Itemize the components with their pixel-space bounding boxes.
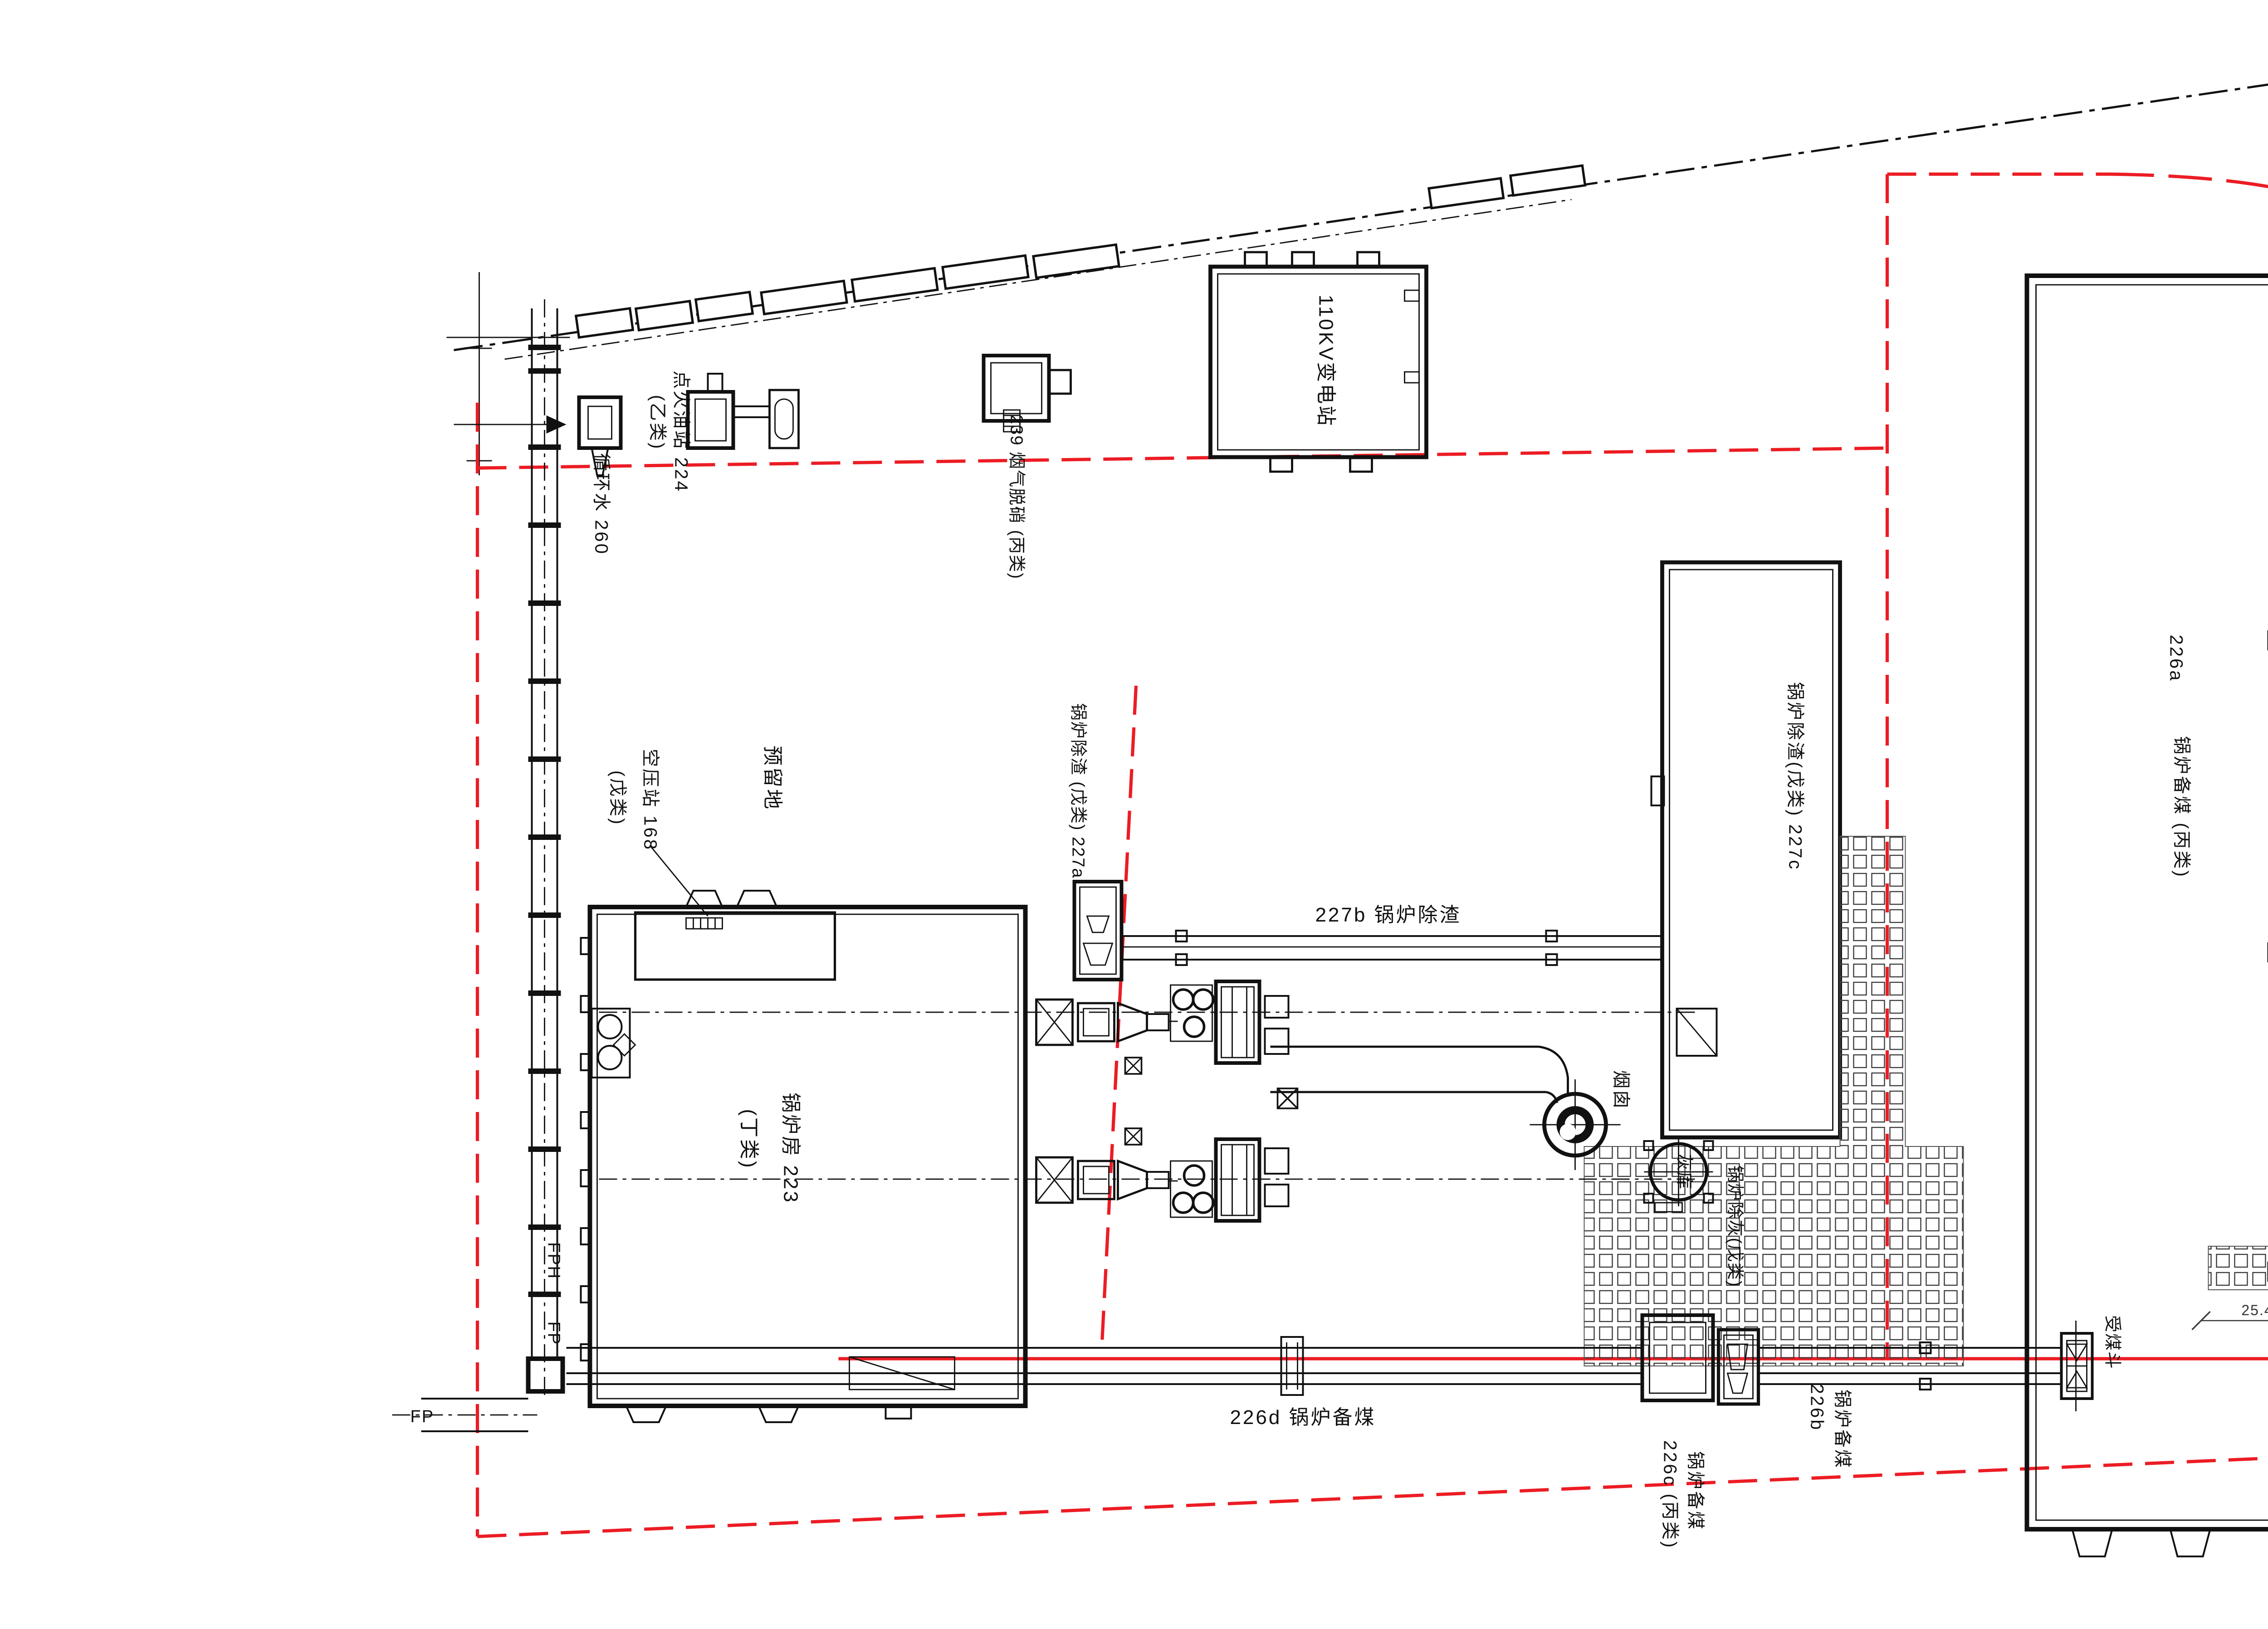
slag-227a-building: 锅炉除渣 (戊类) 227a — [1069, 703, 1122, 980]
coal-226b-name-label: 锅炉备煤 — [1833, 1390, 1853, 1469]
ash-silo-label: 灰库 — [1675, 1154, 1694, 1190]
boiler-house-223: 空压站 168 (戊类) 锅炉房 223 (丁类) — [581, 749, 1026, 1422]
substation-110kv: 110KV变电站 — [1211, 252, 1427, 472]
red-boundary-lines — [478, 174, 2268, 1575]
coal-226a-building: 226a 锅炉备煤 (丙类) 受煤斗 — [2027, 276, 2268, 1556]
coal-conveyor-226d: 226d 锅炉备煤 — [567, 1337, 1642, 1429]
dimension-25-4: 25.4 — [2192, 1302, 2268, 1330]
road-label-fph: FPH — [544, 1242, 563, 1279]
denitration-label: 239 烟气脱硝 (丙类) — [1007, 415, 1026, 580]
red-boundary-arc — [2111, 174, 2268, 265]
reserved-land-label: 预留地 — [762, 746, 784, 811]
slag-227a-label: 锅炉除渣 (戊类) 227a — [1069, 703, 1088, 879]
road-end-marker — [528, 1359, 563, 1391]
pump-group — [592, 1009, 635, 1078]
chimney-label: 烟囱 — [1611, 1070, 1631, 1110]
coal-226c-no-label: 226c (丙类) — [1660, 1440, 1680, 1550]
coal-226c-name-label: 锅炉备煤 — [1686, 1451, 1706, 1531]
fp-bottom-label: FP — [411, 1407, 435, 1426]
slag-227c-building: 锅炉除渣(戊类) 227c — [1652, 562, 1840, 1137]
air-compressor-room — [635, 912, 835, 980]
coal-226b-no-label: 226b — [1807, 1384, 1827, 1432]
circulating-water-label: 循环水 260 — [591, 453, 611, 556]
ash-removal-label: 锅炉除灰(戊类) — [1725, 1165, 1745, 1287]
coal-yard-hatch — [1584, 836, 2268, 1366]
air-compressor-class-label: (戊类) — [608, 771, 628, 826]
red-boundary-bottom — [478, 1451, 2268, 1536]
site-plan-drawing: FPH FP FP 点火油站 224 (乙类) 循环水 260 — [0, 0, 2268, 1629]
ignition-oil-station: 点火油站 224 (乙类) — [579, 371, 799, 493]
ignition-oil-label: 点火油站 224 — [671, 371, 691, 493]
coal-226a-no-label: 226a — [2166, 635, 2186, 683]
fire-road-bottom-left: FP — [392, 1399, 538, 1431]
boiler-train-top — [1036, 981, 1289, 1074]
plant-site-plan-svg: FPH FP FP 点火油站 224 (乙类) 循环水 260 — [0, 0, 2268, 1629]
road-label-fp: FP — [544, 1322, 563, 1346]
roadside-structures — [576, 166, 1585, 337]
dim-25-4-text: 25.4 — [2241, 1302, 2268, 1318]
denitration-239: 239 烟气脱硝 (丙类) — [984, 356, 1071, 580]
air-compressor-label: 空压站 168 — [640, 749, 660, 851]
fire-road-vertical: FPH FP — [528, 299, 563, 1397]
ignition-oil-class-label: (乙类) — [648, 395, 668, 451]
coal-226d-label: 226d 锅炉备煤 — [1230, 1406, 1376, 1429]
substation-label: 110KV变电站 — [1315, 295, 1337, 428]
slag-conveyor-227b: 227b 锅炉除渣 — [1122, 904, 1662, 965]
boiler-train-bottom — [1036, 1128, 1289, 1221]
door-canopies — [626, 891, 911, 1422]
boiler-house-class-label: (丁类) — [738, 1109, 760, 1169]
coal-226a-name-label: 锅炉备煤 (丙类) — [2172, 736, 2192, 878]
boiler-house-name-label: 锅炉房 223 — [780, 1093, 802, 1204]
coal-receiving-hopper: 受煤斗 — [2062, 1315, 2122, 1411]
slag-227c-label: 锅炉除渣(戊类) 227c — [1785, 682, 1805, 871]
slag-227b-label: 227b 锅炉除渣 — [1315, 904, 1461, 926]
flue-duct — [1271, 1047, 1568, 1103]
coal-hopper-label: 受煤斗 — [2103, 1315, 2122, 1370]
